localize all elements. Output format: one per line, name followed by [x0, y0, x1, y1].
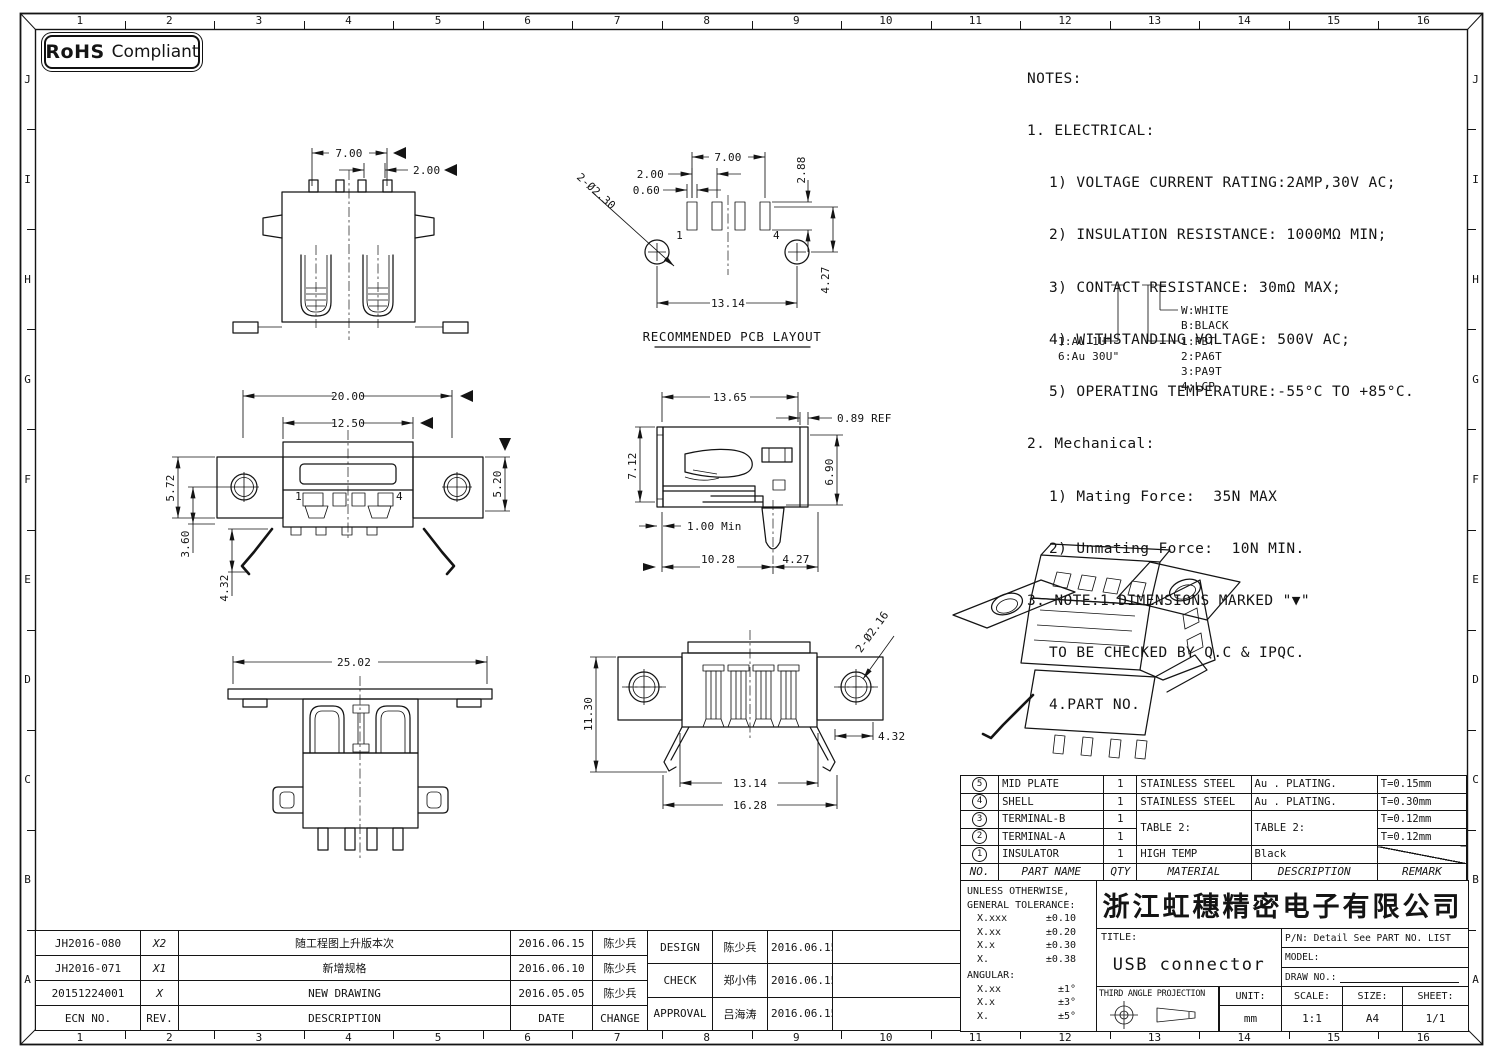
bom-remark: T=0.15mm — [1377, 776, 1466, 794]
revision-row: JH2016-080 X2 随工程图上升版本次 2016.06.15 陈少兵 — [36, 931, 648, 956]
pcb-caption: RECOMMENDED PCB LAYOUT — [643, 329, 822, 344]
approval-role: DESIGN — [648, 931, 713, 964]
border-tick — [393, 21, 394, 29]
bom-material: STAINLESS STEEL — [1137, 776, 1251, 794]
dim-6-90: 6.90 — [823, 458, 836, 485]
rev-change: 陈少兵 — [593, 931, 648, 956]
border-tick — [931, 21, 932, 29]
grid-col-label: 6 — [483, 12, 573, 28]
compliant-label: Compliant — [112, 42, 199, 62]
grid-col-label: 14 — [1199, 1030, 1289, 1045]
border-tick — [752, 21, 753, 29]
balloon-2: 2 — [972, 829, 987, 844]
dim-7-00: 7.00 — [714, 151, 741, 164]
dim-0-60: 0.60 — [633, 184, 660, 197]
border-tick — [841, 1031, 842, 1039]
rev-header-date: DATE — [511, 1006, 593, 1031]
rev-header-ecn: ECN NO. — [36, 1006, 141, 1031]
border-tick — [1020, 21, 1021, 29]
grid-col-label: 15 — [1289, 12, 1379, 28]
rev-rev: X2 — [141, 931, 179, 956]
grid-row-label: A — [20, 930, 35, 1030]
dim-3-60: 3.60 — [179, 530, 192, 557]
dim-1-00-min: 1.00 Min — [687, 520, 742, 533]
rev-date: 2016.06.10 — [511, 956, 593, 981]
balloon-1: 1 — [972, 847, 987, 862]
grid-col-label: 13 — [1110, 1030, 1200, 1045]
grid-row-label: B — [1468, 830, 1483, 930]
legend-white: W:WHITE — [1181, 304, 1229, 317]
balloon-3: 3 — [972, 812, 987, 827]
rohs-label: RoHS — [45, 41, 104, 63]
bom-header-row: NO. PART NAME QTY MATERIAL DESCRIPTION R… — [961, 863, 1467, 881]
dim-7-12: 7.12 — [626, 452, 639, 479]
bom-part: INSULATOR — [999, 846, 1104, 864]
tol-key: X. — [977, 953, 989, 967]
border-tick — [1468, 329, 1476, 330]
grid-row-label: I — [1468, 129, 1483, 229]
border-tick — [1468, 429, 1476, 430]
tol-key: X.xxx — [977, 912, 1007, 926]
border-tick — [483, 1031, 484, 1039]
title-label: TITLE: — [1101, 932, 1137, 943]
border-tick — [1468, 129, 1476, 130]
bom-row: 1 INSULATOR 1 HIGH TEMP Black — [961, 846, 1467, 864]
dim-25-02: 25.02 — [337, 656, 371, 669]
pin4-label: 4 — [396, 490, 403, 503]
revision-row: JH2016-071 X1 新增规格 2016.06.10 陈少兵 — [36, 956, 648, 981]
rev-header-description: DESCRIPTION — [179, 1006, 511, 1031]
rev-description: 随工程图上升版本次 — [179, 931, 511, 956]
grid-col-label: 8 — [662, 1030, 752, 1045]
model-row: MODEL: — [1282, 948, 1468, 967]
grid-col-label: 1 — [35, 12, 125, 28]
border-tick — [27, 830, 35, 831]
grid-col-label: 15 — [1289, 1030, 1379, 1045]
dim-2-00: 2.00 — [413, 164, 440, 177]
note-line: 1) Mating Force: 35N MAX — [1027, 489, 1414, 506]
draw-no-row: DRAW NO.: — [1282, 968, 1468, 987]
border-tick — [27, 429, 35, 430]
border-tick — [304, 1031, 305, 1039]
border-tick — [125, 21, 126, 29]
grid-col-label: 6 — [483, 1030, 573, 1045]
dim-13-14: 13.14 — [733, 777, 767, 790]
grid-row-label: F — [1468, 429, 1483, 529]
bom-description: Black — [1251, 846, 1377, 864]
legend-au6: 6:Au 30U" — [1058, 350, 1119, 363]
material-legend: 1:Au 1U" 6:Au 30U" W:WHITE B:BLACK 1:PBT… — [1040, 272, 1310, 402]
grid-row-label: D — [20, 630, 35, 730]
border-tick — [1468, 730, 1476, 731]
inspect-mark-icon — [420, 417, 433, 429]
border-tick — [572, 1031, 573, 1039]
third-angle-projection-icon — [1097, 1000, 1219, 1030]
border-tick — [1378, 1031, 1379, 1039]
approval-row: APPROVAL 吕海涛 2016.06.15 — [648, 997, 963, 1030]
border-tick — [1468, 630, 1476, 631]
pin4-label: 4 — [773, 229, 780, 242]
border-tick — [931, 1031, 932, 1039]
border-tick — [214, 1031, 215, 1039]
border-tick — [27, 730, 35, 731]
balloon-4: 4 — [972, 794, 987, 809]
rev-rev: X1 — [141, 956, 179, 981]
border-tick — [1289, 1031, 1290, 1039]
dim-13-14: 13.14 — [711, 297, 745, 310]
grid-col-label: 3 — [214, 12, 304, 28]
tol-val: ±0.38 — [1046, 953, 1090, 967]
bom-header-qty: QTY — [1104, 863, 1137, 881]
approval-signature-cell — [833, 931, 963, 964]
border-tick — [27, 129, 35, 130]
dim-5-72: 5.72 — [164, 474, 177, 501]
bom-row: 4 SHELL 1 STAINLESS STEEL Au . PLATING. … — [961, 793, 1467, 811]
border-tick — [27, 630, 35, 631]
dim-11-30: 11.30 — [582, 697, 595, 731]
grid-row-label: H — [1468, 229, 1483, 329]
note-line: 2) INSULATION RESISTANCE: 1000MΩ MIN; — [1027, 227, 1414, 244]
drawing-sheet: 1122334455667788991010111112121313141415… — [0, 0, 1502, 1059]
pn-row: P/N: Detail See PART NO. LIST — [1282, 929, 1468, 948]
pcb-layout-view: 7.00 2.00 0.60 2.88 4.27 13.14 2-Ø2.30 1… — [562, 140, 912, 355]
bom-header-part: PART NAME — [999, 863, 1104, 881]
grid-col-label: 12 — [1020, 1030, 1110, 1045]
bom-material: HIGH TEMP — [1137, 846, 1251, 864]
format-cells: UNIT: SCALE: SIZE: SHEET: mm 1:1 A4 1/1 — [1219, 987, 1468, 1031]
border-tick — [27, 329, 35, 330]
unit-value: mm — [1219, 1005, 1281, 1031]
approval-name: 吕海涛 — [713, 997, 768, 1030]
border-tick — [1468, 530, 1476, 531]
tol-key: X.xx — [977, 983, 1001, 997]
bom-header-description: DESCRIPTION — [1251, 863, 1377, 881]
grid-row-label: B — [20, 830, 35, 930]
revision-row: 20151224001 X NEW DRAWING 2016.05.05 陈少兵 — [36, 981, 648, 1006]
grid-col-label: 10 — [841, 1030, 931, 1045]
border-tick — [662, 21, 663, 29]
grid-row-label: G — [1468, 329, 1483, 429]
grid-row-label: E — [20, 530, 35, 630]
grid-col-label: 9 — [752, 12, 842, 28]
rev-ecn: JH2016-080 — [36, 931, 141, 956]
legend-pa9t: 3:PA9T — [1181, 365, 1222, 378]
size-value: A4 — [1342, 1005, 1402, 1031]
dim-20-00: 20.00 — [331, 390, 365, 403]
rev-change: 陈少兵 — [593, 981, 648, 1006]
tol-val: ±0.30 — [1046, 939, 1090, 953]
bom-remark: T=0.12mm — [1377, 811, 1466, 829]
inspect-mark-icon — [444, 164, 457, 176]
grid-col-label: 13 — [1110, 12, 1200, 28]
grid-col-label: 9 — [752, 1030, 842, 1045]
legend-black: B:BLACK — [1181, 319, 1229, 332]
rev-ecn: 20151224001 — [36, 981, 141, 1006]
dim-4-27: 4.27 — [782, 553, 809, 566]
border-tick — [27, 530, 35, 531]
grid-row-label: J — [20, 29, 35, 129]
tol-val: ±0.10 — [1046, 912, 1090, 926]
approval-row: CHECK 郑小伟 2016.06.15 — [648, 964, 963, 997]
rev-date: 2016.05.05 — [511, 981, 593, 1006]
tolerance-line: UNLESS OTHERWISE, — [967, 885, 1090, 899]
grid-col-label: 5 — [393, 12, 483, 28]
grid-col-label: 1 — [35, 1030, 125, 1045]
grid-col-label: 2 — [125, 1030, 215, 1045]
grid-col-label: 11 — [931, 1030, 1021, 1045]
dim-hole-2-230: 2-Ø2.30 — [574, 171, 618, 213]
dim-10-28: 10.28 — [701, 553, 735, 566]
bom-remark-slash — [1377, 846, 1466, 864]
dim-7-00: 7.00 — [335, 147, 362, 160]
part-number-stack: P/N: Detail See PART NO. LIST MODEL: DRA… — [1282, 929, 1468, 987]
rev-date: 2016.06.15 — [511, 931, 593, 956]
rear-view: 25.02 — [182, 636, 512, 866]
draw-no-label: DRAW NO.: — [1285, 972, 1336, 983]
note-line: 1. ELECTRICAL: — [1027, 123, 1414, 140]
grid-col-label: 4 — [304, 1030, 394, 1045]
sheet-value: 1/1 — [1402, 1005, 1468, 1031]
approval-date: 2016.06.15 — [768, 931, 833, 964]
pin1-label: 1 — [295, 490, 302, 503]
border-tick — [1199, 1031, 1200, 1039]
grid-row-label: E — [1468, 530, 1483, 630]
company-name: 浙江虹穗精密电子有限公司 — [1097, 881, 1468, 929]
dim-12-50: 12.50 — [331, 417, 365, 430]
flange-front-view: 20.00 12.50 5.72 3.60 4.32 5.20 1 4 — [148, 378, 533, 668]
grid-row-label: C — [20, 730, 35, 830]
dim-2-88: 2.88 — [795, 156, 808, 183]
dim-4-32: 4.32 — [878, 730, 905, 743]
bom-header-no: NO. — [961, 863, 999, 881]
note-line: 2. Mechanical: — [1027, 436, 1414, 453]
rev-header-rev: REV. — [141, 1006, 179, 1031]
bom-material: STAINLESS STEEL — [1137, 793, 1251, 811]
border-tick — [1020, 1031, 1021, 1039]
approval-name: 郑小伟 — [713, 964, 768, 997]
grid-row-label: A — [1468, 930, 1483, 1030]
border-tick — [662, 1031, 663, 1039]
border-tick — [27, 229, 35, 230]
projection-cell: THIRD ANGLE PROJECTION — [1097, 987, 1219, 1031]
bom-description: Au . PLATING. — [1251, 793, 1377, 811]
grid-col-label: 16 — [1378, 1030, 1468, 1045]
border-tick — [1199, 21, 1200, 29]
dim-16-28: 16.28 — [733, 799, 767, 812]
bom-remark: T=0.30mm — [1377, 793, 1466, 811]
legend-au1: 1:Au 1U" — [1058, 335, 1113, 348]
border-tick — [1468, 830, 1476, 831]
dim-2-00: 2.00 — [637, 168, 664, 181]
inspect-mark-icon — [393, 147, 406, 159]
grid-col-label: 14 — [1199, 12, 1289, 28]
grid-row-label: J — [1468, 29, 1483, 129]
tolerance-line: GENERAL TOLERANCE: — [967, 899, 1090, 913]
rev-ecn: JH2016-071 — [36, 956, 141, 981]
border-tick — [304, 21, 305, 29]
approval-table: DESIGN 陈少兵 2016.06.15 CHECK 郑小伟 2016.06.… — [647, 930, 963, 1031]
size-label: SIZE: — [1342, 987, 1402, 1005]
border-tick — [1289, 21, 1290, 29]
scale-label: SCALE: — [1281, 987, 1342, 1005]
grid-col-label: 7 — [572, 12, 662, 28]
grid-col-label: 16 — [1378, 12, 1468, 28]
grid-col-label: 8 — [662, 12, 752, 28]
grid-col-label: 7 — [572, 1030, 662, 1045]
bom-part: SHELL — [999, 793, 1104, 811]
tol-val: ±1° — [1058, 983, 1090, 997]
drawing-title: USB connector — [1097, 955, 1281, 975]
draw-no-line — [1340, 971, 1459, 983]
border-tick — [841, 21, 842, 29]
unit-label: UNIT: — [1219, 987, 1281, 1005]
bom-qty: 1 — [1104, 811, 1137, 829]
inspect-mark-icon — [643, 563, 656, 571]
grid-row-label: C — [1468, 730, 1483, 830]
bom-part: TERMINAL-B — [999, 811, 1104, 829]
bom-row: 3 TERMINAL-B 1 TABLE 2: TABLE 2: T=0.12m… — [961, 811, 1467, 829]
approval-signature-cell — [833, 997, 963, 1030]
grid-col-label: 12 — [1020, 12, 1110, 28]
grid-row-label: D — [1468, 630, 1483, 730]
border-tick — [572, 21, 573, 29]
grid-col-label: 11 — [931, 12, 1021, 28]
sheet-label: SHEET: — [1402, 987, 1468, 1005]
bom-row: 5 MID PLATE 1 STAINLESS STEEL Au . PLATI… — [961, 776, 1467, 794]
projection-label: THIRD ANGLE PROJECTION — [1099, 989, 1205, 999]
tol-key: X. — [977, 1010, 989, 1024]
border-tick — [1468, 229, 1476, 230]
note-line: NOTES: — [1027, 71, 1414, 88]
grid-row-label: H — [20, 229, 35, 329]
grid-col-label: 3 — [214, 1030, 304, 1045]
border-tick — [1378, 21, 1379, 29]
bom-remark: T=0.12mm — [1377, 828, 1466, 846]
approval-signature-cell — [833, 964, 963, 997]
tol-key: X.x — [977, 939, 995, 953]
bom-qty: 1 — [1104, 776, 1137, 794]
border-tick — [752, 1031, 753, 1039]
tol-key: X.x — [977, 996, 995, 1010]
border-tick — [1110, 21, 1111, 29]
grid-row-label: F — [20, 429, 35, 529]
dim-13-65: 13.65 — [713, 391, 747, 404]
approval-name: 陈少兵 — [713, 931, 768, 964]
border-tick — [214, 21, 215, 29]
balloon-5: 5 — [972, 777, 987, 792]
bom-description: Au . PLATING. — [1251, 776, 1377, 794]
dim-4-32: 4.32 — [218, 574, 231, 601]
grid-col-label: 5 — [393, 1030, 483, 1045]
rev-description: 新增规格 — [179, 956, 511, 981]
tol-val: ±5° — [1058, 1010, 1090, 1024]
bom-qty: 1 — [1104, 846, 1137, 864]
approval-date: 2016.06.15 — [768, 964, 833, 997]
inspect-mark-icon — [460, 390, 473, 402]
border-tick — [483, 21, 484, 29]
isometric-view — [945, 520, 1275, 770]
tolerance-angular-label: ANGULAR: — [967, 969, 1090, 983]
tol-key: X.xx — [977, 926, 1001, 940]
note-line: 1) VOLTAGE CURRENT RATING:2AMP,30V AC; — [1027, 175, 1414, 192]
tol-val: ±0.20 — [1046, 926, 1090, 940]
rev-header-change: CHANGE — [593, 1006, 648, 1031]
dim-5-20: 5.20 — [491, 470, 504, 497]
border-tick — [1468, 930, 1476, 931]
grid-col-label: 2 — [125, 12, 215, 28]
dim-0-89-ref: 0.89 REF — [837, 412, 892, 425]
top-view: 11.30 2-Ø2.16 4.32 13.14 16.28 — [572, 588, 937, 838]
bom-table: 5 MID PLATE 1 STAINLESS STEEL Au . PLATI… — [960, 775, 1467, 881]
border-tick — [27, 930, 35, 931]
revision-header-row: ECN NO. REV. DESCRIPTION DATE CHANGE — [36, 1006, 648, 1031]
rev-description: NEW DRAWING — [179, 981, 511, 1006]
title-cell: TITLE: USB connector — [1097, 929, 1282, 987]
tolerance-block: UNLESS OTHERWISE, GENERAL TOLERANCE: X.x… — [961, 881, 1097, 1031]
tol-val: ±3° — [1058, 996, 1090, 1010]
rev-rev: X — [141, 981, 179, 1006]
bom-description: TABLE 2: — [1251, 811, 1377, 846]
inspect-mark-icon — [499, 438, 511, 451]
dim-4-27: 4.27 — [819, 266, 832, 293]
front-view: 7.00 2.00 — [225, 130, 525, 365]
side-view: 13.65 0.89 REF 7.12 6.90 1.00 Min 10.28 … — [615, 382, 925, 602]
bom-part: TERMINAL-A — [999, 828, 1104, 846]
revision-table: JH2016-080 X2 随工程图上升版本次 2016.06.15 陈少兵 J… — [35, 930, 648, 1031]
title-block: UNLESS OTHERWISE, GENERAL TOLERANCE: X.x… — [960, 880, 1469, 1032]
border-tick — [1110, 1031, 1111, 1039]
grid-col-label: 10 — [841, 12, 931, 28]
rohs-badge: RoHS Compliant — [44, 35, 200, 69]
approval-role: CHECK — [648, 964, 713, 997]
grid-col-label: 4 — [304, 12, 394, 28]
grid-row-label: G — [20, 329, 35, 429]
bom-header-remark: REMARK — [1377, 863, 1466, 881]
scale-value: 1:1 — [1281, 1005, 1342, 1031]
approval-row: DESIGN 陈少兵 2016.06.15 — [648, 931, 963, 964]
approval-role: APPROVAL — [648, 997, 713, 1030]
legend-lcp: 4:LCP — [1181, 380, 1215, 393]
grid-row-label: I — [20, 129, 35, 229]
rev-change: 陈少兵 — [593, 956, 648, 981]
bom-header-material: MATERIAL — [1137, 863, 1251, 881]
legend-pbt: 1:PBT — [1181, 335, 1215, 348]
pin1-label: 1 — [676, 229, 683, 242]
bom-qty: 1 — [1104, 793, 1137, 811]
bom-qty: 1 — [1104, 828, 1137, 846]
legend-pa6t: 2:PA6T — [1181, 350, 1222, 363]
bom-part: MID PLATE — [999, 776, 1104, 794]
approval-date: 2016.06.15 — [768, 997, 833, 1030]
border-tick — [393, 1031, 394, 1039]
border-tick — [125, 1031, 126, 1039]
bom-material: TABLE 2: — [1137, 811, 1251, 846]
